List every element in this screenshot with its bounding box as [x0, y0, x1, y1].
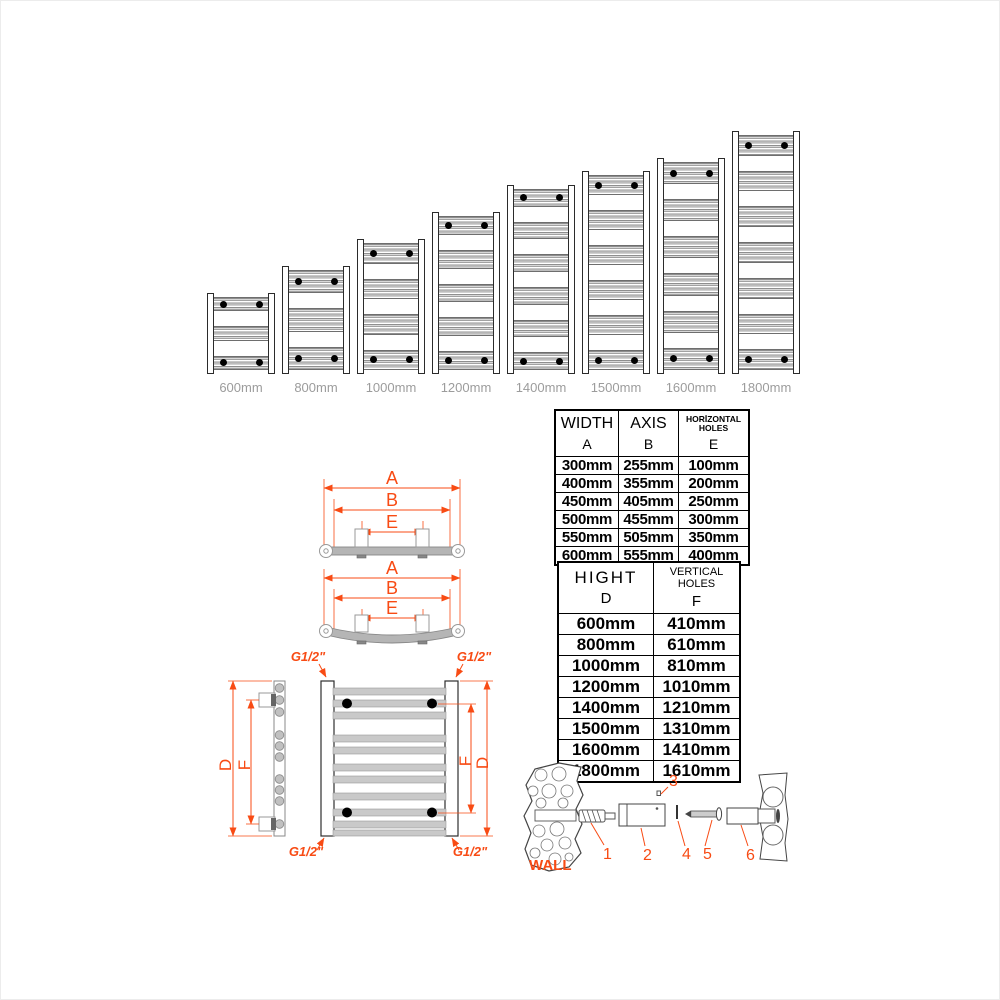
top-view-straight-diagram: A B E	[301, 469, 481, 569]
radiator-rail	[343, 266, 350, 374]
mount-dot	[745, 142, 752, 149]
mount-dot	[220, 359, 227, 366]
value-cell: 250mm	[679, 493, 750, 511]
value-cell: 550mm	[555, 529, 619, 547]
radiator-rail	[657, 158, 664, 374]
part-number-5: 5	[703, 846, 712, 863]
thread-label: G1/2"	[457, 649, 492, 664]
dim-letter-F: F	[235, 760, 254, 770]
radiator-rail	[732, 131, 739, 374]
value-cell: 505mm	[619, 529, 679, 547]
radiator-rail	[357, 239, 364, 374]
eyelet-hole	[456, 549, 460, 553]
mount-dot	[445, 357, 452, 364]
radiator-height-label: 1800mm	[741, 380, 792, 396]
value-cell: 450mm	[555, 493, 619, 511]
mount-dot	[781, 142, 788, 149]
height-holes-table: HIGHTDVERTICAL HOLESF600mm410mm800mm610m…	[557, 561, 741, 783]
spacer-sleeve	[619, 804, 665, 826]
value-cell: 455mm	[619, 511, 679, 529]
dim-letter-D: D	[473, 757, 492, 769]
mount-dot	[670, 355, 677, 362]
value-cell: 410mm	[654, 614, 741, 635]
radiator-height-label: 1200mm	[441, 380, 492, 396]
mount-dot	[342, 808, 352, 818]
mount-dot	[481, 357, 488, 364]
mount-dot	[670, 170, 677, 177]
radiator-rail	[418, 239, 425, 374]
column-header: HORİZONTAL HOLESE	[679, 410, 750, 457]
radiator-rail	[568, 185, 575, 374]
radiator-1000mm: 1000mm	[357, 239, 425, 396]
value-cell: 300mm	[555, 457, 619, 475]
mount-dot	[406, 356, 413, 363]
radiator-height-label: 600mm	[219, 380, 262, 396]
table-row: 1500mm1310mm	[558, 719, 740, 740]
value-cell: 300mm	[679, 511, 750, 529]
table-row: 300mm255mm100mm	[555, 457, 749, 475]
mount-dot	[520, 194, 527, 201]
eyelet-hole	[324, 629, 328, 633]
bracket	[416, 615, 429, 632]
radiator-1600mm: 1600mm	[657, 158, 725, 396]
value-cell: 1210mm	[654, 698, 741, 719]
value-cell: 1410mm	[654, 740, 741, 761]
table-row: 400mm355mm200mm	[555, 475, 749, 493]
column-header: VERTICAL HOLESF	[654, 562, 741, 614]
table-row: 1000mm810mm	[558, 656, 740, 677]
front-side-view-diagram: D F F D G1/2" G1/2" G1/2" G1/2"	[216, 643, 531, 868]
screw	[685, 808, 722, 820]
table-row: 500mm455mm300mm	[555, 511, 749, 529]
mount-dot	[220, 301, 227, 308]
part-number-4: 4	[682, 846, 691, 863]
radiator-rail	[793, 131, 800, 374]
dim-letter-A: A	[386, 468, 398, 488]
radiator-rail	[643, 171, 650, 374]
column-header: WIDTHA	[555, 410, 619, 457]
table-row: 550mm505mm350mm	[555, 529, 749, 547]
mount-dot	[781, 356, 788, 363]
radiator-rail	[432, 212, 439, 374]
radiator-1500mm: 1500mm	[582, 171, 650, 396]
bracket	[416, 529, 429, 547]
bracket	[355, 529, 368, 547]
radiator-rail	[268, 293, 275, 374]
mount-dot	[256, 359, 263, 366]
radiator-1400mm: 1400mm	[507, 185, 575, 396]
mount-dot	[331, 278, 338, 285]
mount-dot	[631, 182, 638, 189]
mount-dot	[295, 278, 302, 285]
front-rail-left	[321, 681, 334, 836]
column-header: AXISB	[619, 410, 679, 457]
mount-dot	[706, 355, 713, 362]
eyelet-hole	[456, 629, 460, 633]
part-number-2: 2	[643, 847, 652, 864]
dim-letter-E: E	[386, 598, 398, 618]
grub-screw	[657, 791, 661, 796]
value-cell: 1400mm	[558, 698, 654, 719]
dim-letter-D: D	[216, 759, 235, 771]
table-row: 1400mm1210mm	[558, 698, 740, 719]
radiator-row: 600mm800mm1000mm1200mm1400mm1500mm1600mm…	[207, 131, 800, 396]
radiator-height-label: 1400mm	[516, 380, 567, 396]
width-holes-table: WIDTHAAXISBHORİZONTAL HOLESE300mm255mm10…	[554, 409, 750, 566]
thread-label: G1/2"	[453, 844, 488, 859]
value-cell: 400mm	[555, 475, 619, 493]
radiator-rail	[582, 171, 589, 374]
drill-hole	[535, 810, 576, 821]
radiator-rail	[493, 212, 500, 374]
value-cell: 1600mm	[558, 740, 654, 761]
value-cell: 100mm	[679, 457, 750, 475]
value-cell: 800mm	[558, 635, 654, 656]
dim-letter-B: B	[386, 578, 398, 598]
side-bracket-cap	[271, 818, 276, 830]
value-cell: 1310mm	[654, 719, 741, 740]
spec-sheet: 600mm800mm1000mm1200mm1400mm1500mm1600mm…	[0, 0, 1000, 1000]
part-number-6: 6	[746, 847, 755, 864]
mount-dot	[427, 808, 437, 818]
eyelet-hole	[324, 549, 328, 553]
mount-dot	[556, 358, 563, 365]
mount-dot	[631, 357, 638, 364]
mount-dot	[595, 357, 602, 364]
radiator-height-label: 800mm	[294, 380, 337, 396]
dim-letter-A: A	[386, 558, 398, 578]
table-row: 450mm405mm250mm	[555, 493, 749, 511]
table-row: 1200mm1010mm	[558, 677, 740, 698]
wall-mounting-diagram: WALL	[519, 761, 809, 876]
dim-letter-B: B	[386, 490, 398, 510]
thread-label: G1/2"	[291, 649, 326, 664]
dim-letter-E: E	[386, 512, 398, 532]
part-number-1: 1	[603, 846, 612, 863]
wall-label: WALL	[529, 857, 572, 874]
bracket-foot	[357, 555, 366, 558]
table-row: 800mm610mm	[558, 635, 740, 656]
mount-dot	[342, 699, 352, 709]
mount-dot	[370, 356, 377, 363]
value-cell: 355mm	[619, 475, 679, 493]
mount-dot	[295, 355, 302, 362]
value-cell: 600mm	[558, 614, 654, 635]
side-bracket-cap	[271, 694, 276, 706]
curved-rail-top-view	[326, 627, 458, 643]
value-cell: 405mm	[619, 493, 679, 511]
value-cell: 255mm	[619, 457, 679, 475]
top-view-curved-diagram: A B E	[301, 563, 481, 655]
part-number-3: 3	[669, 773, 678, 790]
radiator-rail	[207, 293, 214, 374]
mount-dot	[406, 250, 413, 257]
mount-dot	[370, 250, 377, 257]
radiator-1800mm: 1800mm	[732, 131, 800, 396]
mount-dot	[256, 301, 263, 308]
mount-dot	[706, 170, 713, 177]
mount-dot	[595, 182, 602, 189]
bracket	[355, 615, 368, 632]
radiator-rail	[507, 185, 514, 374]
radiator-bracket	[727, 773, 788, 861]
mount-dot	[481, 222, 488, 229]
value-cell: 500mm	[555, 511, 619, 529]
mount-dot	[556, 194, 563, 201]
radiator-height-label: 1600mm	[666, 380, 717, 396]
table-row: 1600mm1410mm	[558, 740, 740, 761]
value-cell: 1000mm	[558, 656, 654, 677]
column-header: HIGHTD	[558, 562, 654, 614]
value-cell: 350mm	[679, 529, 750, 547]
mount-dot	[427, 699, 437, 709]
radiator-1200mm: 1200mm	[432, 212, 500, 396]
radiator-height-label: 1500mm	[591, 380, 642, 396]
bracket-foot	[418, 555, 427, 558]
table-row: 600mm410mm	[558, 614, 740, 635]
value-cell: 1200mm	[558, 677, 654, 698]
value-cell: 1500mm	[558, 719, 654, 740]
radiator-height-label: 1000mm	[366, 380, 417, 396]
radiator-800mm: 800mm	[282, 266, 350, 396]
radiator-rail	[282, 266, 289, 374]
value-cell: 610mm	[654, 635, 741, 656]
value-cell: 200mm	[679, 475, 750, 493]
mount-dot	[520, 358, 527, 365]
rail-top-view	[326, 547, 458, 555]
radiator-600mm: 600mm	[207, 293, 275, 396]
mount-dot	[745, 356, 752, 363]
wall-plug	[579, 810, 615, 822]
value-cell: 1010mm	[654, 677, 741, 698]
mount-dot	[445, 222, 452, 229]
mount-dot	[331, 355, 338, 362]
value-cell: 810mm	[654, 656, 741, 677]
radiator-rail	[718, 158, 725, 374]
